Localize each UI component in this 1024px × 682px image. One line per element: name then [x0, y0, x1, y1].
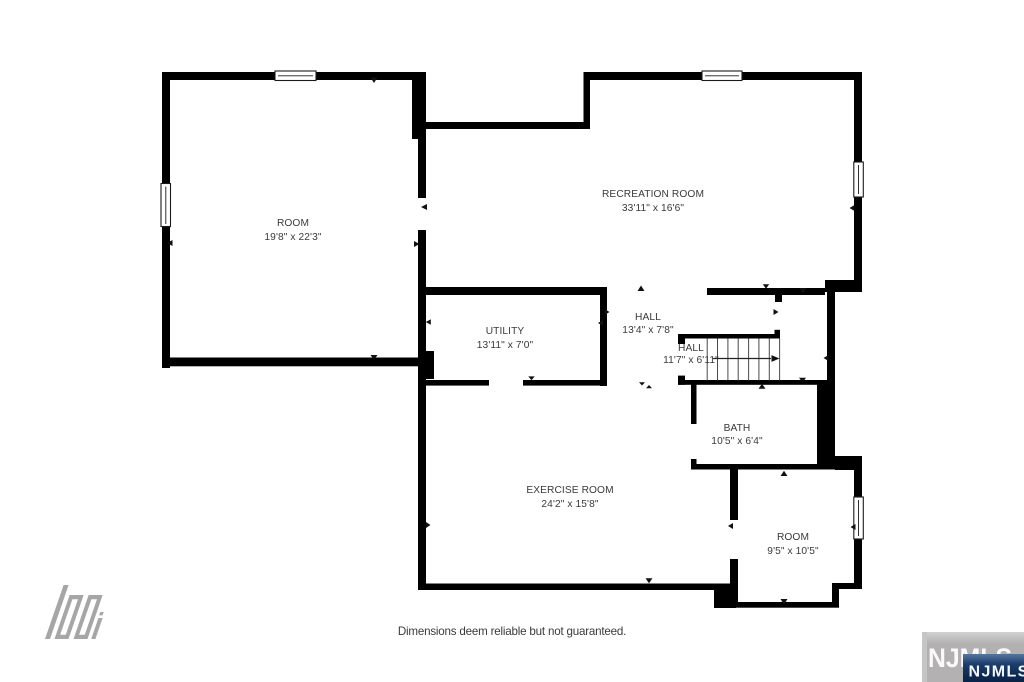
svg-text:13'4" x 7'8": 13'4" x 7'8" — [622, 325, 674, 336]
svg-text:13'11" x 7'0": 13'11" x 7'0" — [477, 340, 534, 351]
svg-text:EXERCISE ROOM: EXERCISE ROOM — [526, 485, 613, 496]
svg-text:24'2" x 15'8": 24'2" x 15'8" — [541, 499, 598, 510]
svg-text:10'5" x 6'4": 10'5" x 6'4" — [711, 436, 763, 447]
svg-text:UTILITY: UTILITY — [486, 326, 525, 337]
svg-text:Dimensions deem reliable but n: Dimensions deem reliable but not guarant… — [398, 625, 626, 638]
svg-text:NJMLS: NJMLS — [969, 664, 1024, 681]
svg-text:19'8" x 22'3": 19'8" x 22'3" — [264, 232, 321, 243]
svg-text:BATH: BATH — [724, 423, 751, 434]
svg-text:ROOM: ROOM — [777, 532, 809, 543]
svg-text:11'7" x 6'11": 11'7" x 6'11" — [663, 355, 719, 366]
svg-text:HALL: HALL — [635, 312, 661, 323]
svg-text:RECREATION ROOM: RECREATION ROOM — [602, 189, 704, 200]
svg-text:33'11" x 16'6": 33'11" x 16'6" — [622, 203, 684, 214]
svg-text:ROOM: ROOM — [277, 218, 309, 229]
svg-text:HALL: HALL — [678, 343, 704, 354]
svg-text:9'5" x 10'5": 9'5" x 10'5" — [767, 546, 819, 557]
